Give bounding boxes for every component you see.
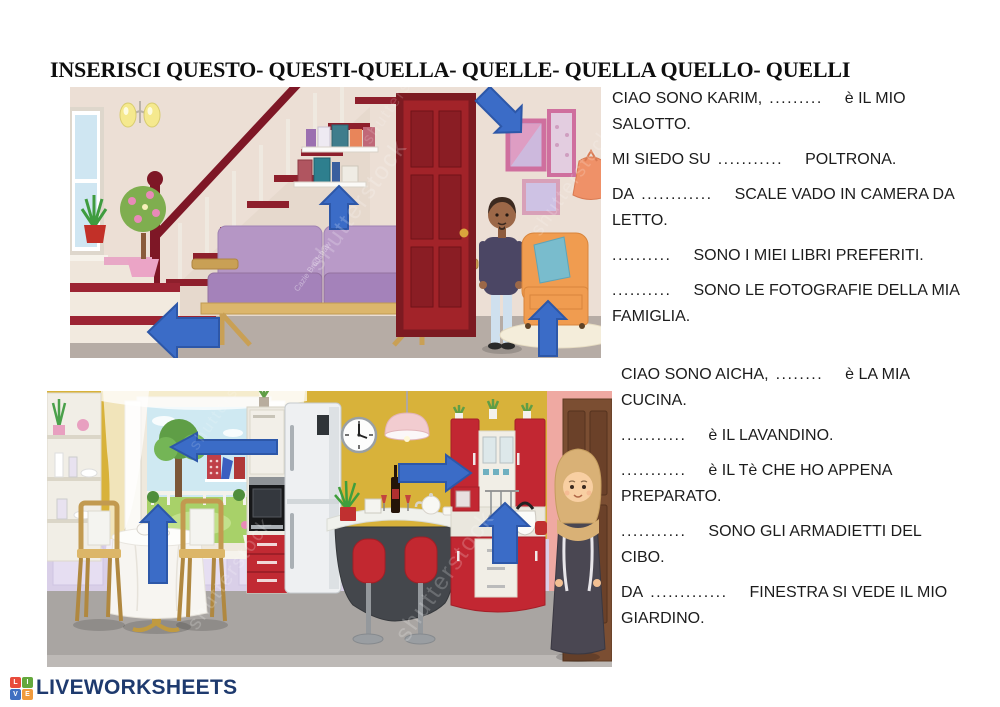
answer-blank[interactable]: ........... [621, 427, 686, 444]
logo-square-v: V [10, 689, 21, 700]
sentence: ...........SONO GLI ARMADIETTI DEL CIBO. [621, 519, 994, 571]
logo-square-e: E [22, 689, 33, 700]
front-door [396, 93, 476, 337]
sentence-text: CIAO SONO AICHA, [621, 366, 769, 383]
liveworksheets-footer: L I V E LIVEWORKSHEETS [10, 676, 237, 700]
kitchen-illustration: shutterstock shutterstock shutterstock [47, 391, 612, 667]
living-room-illustration: shutterstock shutterstock shutterstock C… [70, 87, 601, 358]
logo-square-i: I [22, 677, 33, 688]
sentence-text: DA [621, 584, 643, 601]
wall-books-icon [205, 455, 247, 482]
sentence: ...........è IL LAVANDINO. [621, 423, 994, 449]
karim-paragraph: CIAO SONO KARIM,.........è IL MIO SALOTT… [612, 86, 994, 330]
sentence: CIAO SONO AICHA,........è LA MIA CUCINA. [621, 362, 994, 414]
sentence: ..........SONO LE FOTOGRAFIE DELLA MIA F… [612, 278, 994, 330]
answer-blank[interactable]: ........... [621, 462, 686, 479]
answer-blank[interactable]: ........ [776, 366, 824, 383]
exercise-text: CIAO SONO KARIM,.........è IL MIO SALOTT… [612, 86, 994, 641]
fridge [285, 403, 341, 593]
aicha-character [551, 449, 605, 662]
sentence-text: è IL LAVANDINO. [708, 427, 833, 444]
worksheet-title: INSERISCI QUESTO- QUESTI-QUELLA- QUELLE-… [50, 57, 850, 83]
liveworksheets-logo-icon: L I V E [10, 677, 33, 700]
kitchen-cabinets [451, 399, 547, 612]
answer-blank[interactable]: ............. [650, 584, 727, 601]
oven-column [247, 391, 287, 593]
answer-blank[interactable]: ........... [621, 523, 686, 540]
wall-clock-icon [342, 418, 376, 452]
answer-blank[interactable]: ........... [718, 151, 783, 168]
sentence: ...........è IL Tè CHE HO APPENA PREPARA… [621, 458, 994, 510]
answer-blank[interactable]: ......... [769, 90, 823, 107]
sentence: DA.............FINESTRA SI VEDE IL MIO G… [621, 580, 994, 632]
logo-square-l: L [10, 677, 21, 688]
sentence-text: POLTRONA. [805, 151, 896, 168]
answer-blank[interactable]: .......... [612, 247, 671, 264]
sentence-text: DA [612, 186, 634, 203]
sentence-text: MI SIEDO SU [612, 151, 711, 168]
liveworksheets-brand: LIVEWORKSHEETS [36, 676, 237, 700]
sentence-text: SONO I MIEI LIBRI PREFERITI. [693, 247, 923, 264]
answer-blank[interactable]: .......... [612, 282, 671, 299]
sentence: CIAO SONO KARIM,.........è IL MIO SALOTT… [612, 86, 994, 138]
answer-blank[interactable]: ............ [641, 186, 712, 203]
sentence: DA............SCALE VADO IN CAMERA DA LE… [612, 182, 994, 234]
sentence: MI SIEDO SU...........POLTRONA. [612, 147, 994, 173]
aicha-paragraph: CIAO SONO AICHA,........è LA MIA CUCINA.… [612, 362, 994, 632]
sentence: ..........SONO I MIEI LIBRI PREFERITI. [612, 243, 994, 269]
sentence-text: CIAO SONO KARIM, [612, 90, 762, 107]
